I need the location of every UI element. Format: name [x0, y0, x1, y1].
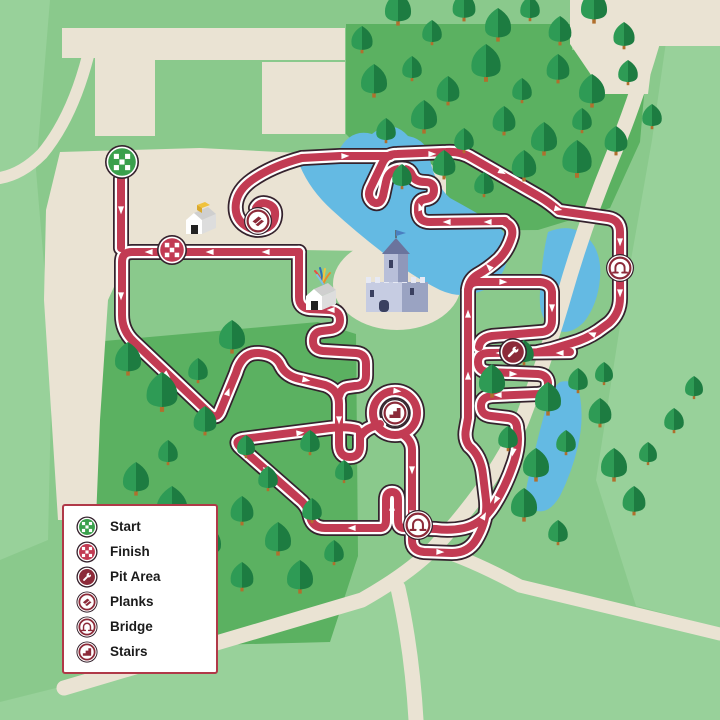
course-map-page: Start Finish Pit Area Planks Bridge Stai… [0, 0, 720, 720]
planks-marker [76, 591, 97, 612]
legend-label-planks: Planks [110, 594, 154, 609]
planks-icon [74, 589, 100, 615]
bridge-icon [74, 614, 100, 640]
pit-marker [76, 566, 97, 587]
pit-marker [499, 338, 527, 366]
legend: Start Finish Pit Area Planks Bridge Stai… [62, 504, 218, 674]
legend-item-planks: Planks [74, 590, 206, 613]
stairs-marker [381, 399, 409, 427]
start-icon [74, 514, 100, 540]
stairs-icon [74, 639, 100, 665]
pit-area-icon [74, 564, 100, 590]
legend-item-start: Start [74, 515, 206, 538]
start-marker [76, 516, 97, 537]
finish-icon [74, 539, 100, 565]
legend-label-pit: Pit Area [110, 569, 161, 584]
legend-label-start: Start [110, 519, 141, 534]
finish-marker [157, 235, 187, 265]
legend-label-bridge: Bridge [110, 619, 153, 634]
legend-item-bridge: Bridge [74, 615, 206, 638]
legend-item-pit: Pit Area [74, 565, 206, 588]
planks-marker [244, 207, 272, 235]
bridge-marker [606, 254, 634, 282]
legend-label-stairs: Stairs [110, 644, 148, 659]
start-marker [105, 145, 139, 179]
stairs-marker [76, 641, 97, 662]
bridge-marker [76, 616, 97, 637]
legend-item-stairs: Stairs [74, 640, 206, 663]
legend-item-finish: Finish [74, 540, 206, 563]
legend-label-finish: Finish [110, 544, 150, 559]
finish-marker [76, 541, 97, 562]
bridge-marker [403, 510, 433, 540]
